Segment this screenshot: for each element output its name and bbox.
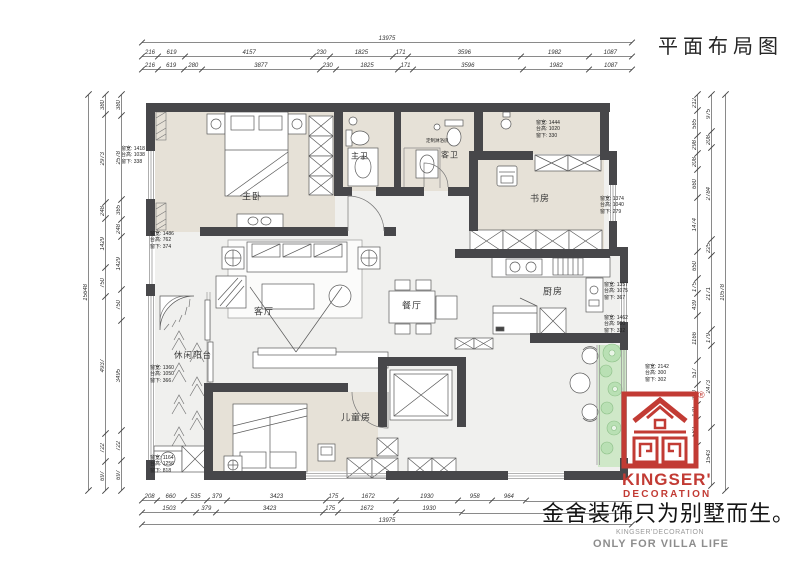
dim-segment: 1930 bbox=[396, 506, 462, 516]
dim-segment: 1474 bbox=[691, 198, 702, 252]
dim-segment: 4937 bbox=[99, 297, 110, 434]
room-label-dining: 餐厅 bbox=[402, 299, 422, 312]
brand-sub-en2: ONLY FOR VILLA LIFE bbox=[586, 538, 736, 550]
dim-segment: 3596 bbox=[408, 50, 521, 60]
dim-chain-bottom-detail-1: 208660535379342317516721930958964 bbox=[142, 494, 526, 504]
dim-chain-bottom-detail-2: 1503379342317516721930 bbox=[142, 506, 462, 516]
dim-segment: 1429 bbox=[115, 237, 126, 290]
registered-mark: ® bbox=[698, 390, 705, 400]
dim-chain-top-overall: 13975 bbox=[142, 36, 632, 46]
brand-slogan: 金舍装饰只为别墅而生。 bbox=[542, 496, 795, 528]
room-label-leisure-balcony: 休闲阳台 bbox=[174, 349, 212, 361]
dim-segment: 975 bbox=[705, 95, 716, 132]
room-label-master: 主卧 bbox=[242, 190, 262, 203]
dim-segment: 1825 bbox=[336, 63, 398, 73]
dim-segment: 1825 bbox=[330, 50, 394, 60]
room-label-guest-bath: 客卫 bbox=[441, 150, 459, 161]
dim-chain-left-inner: 380257836524814297503495722697 bbox=[115, 95, 126, 490]
room-label-kids: 儿童房 bbox=[341, 411, 371, 424]
window-spec-annotation: 窗宽: 1374台高: 1040窗下: 279 bbox=[600, 196, 624, 215]
brand-sub-en1: KINGSER'DECORATION bbox=[595, 529, 725, 536]
dim-segment: 3877 bbox=[202, 63, 320, 73]
dim-segment: 697 bbox=[115, 461, 126, 490]
dim-segment: 2171 bbox=[705, 256, 716, 330]
dim-segment: 1982 bbox=[523, 63, 590, 73]
dim-segment: 2578 bbox=[115, 116, 126, 201]
room-label-master-bath: 主卫 bbox=[351, 151, 369, 162]
dim-chain-left-mid: 380297324814297504937722697 bbox=[99, 95, 110, 490]
dim-segment: 1672 bbox=[341, 494, 396, 504]
dim-segment: 2473 bbox=[705, 346, 716, 429]
brand-name-line1: KINGSER' bbox=[622, 470, 712, 490]
dim-segment: 225 bbox=[705, 240, 716, 256]
room-label-living: 客厅 bbox=[254, 305, 274, 318]
study-desk bbox=[497, 166, 517, 186]
dim-segment: 697 bbox=[99, 462, 110, 490]
dim-segment: 2784 bbox=[705, 148, 716, 240]
window-spec-annotation: 窗宽: 1164台高: 1256窗下: 818 bbox=[150, 455, 174, 474]
dim-segment: 13975 bbox=[142, 36, 632, 46]
elevator-shaft bbox=[390, 370, 452, 420]
window-spec-annotation: 窗宽: 1360台高: 1050窗下: 366 bbox=[150, 365, 174, 384]
kingser-logo: ® bbox=[620, 388, 706, 472]
dim-segment: 1087 bbox=[589, 50, 632, 60]
shower-note: 定制淋浴房 bbox=[426, 138, 449, 144]
dim-chain-top-detail-2: 21661928038772301825171359619821087 bbox=[142, 63, 632, 73]
dim-segment: 15648 bbox=[82, 95, 93, 490]
floor-plan-page: 主卧 主卫 客卫 书房 餐厅 厨房 客厅 休闲阳台 儿童房 定制淋浴房 窗宽: … bbox=[0, 0, 800, 565]
room-label-study: 书房 bbox=[530, 192, 550, 205]
dim-chain-right-mid: 9752082784225217117924731543 bbox=[705, 95, 716, 485]
dim-segment: 1429 bbox=[99, 219, 110, 268]
dim-chain-left-overall: 15648 bbox=[82, 95, 93, 490]
window-spec-annotation: 窗宽: 1486台高: 762窗下: 374 bbox=[150, 231, 174, 250]
dim-segment: 3423 bbox=[216, 506, 322, 516]
dim-segment: 1503 bbox=[142, 506, 196, 516]
dim-segment: 1982 bbox=[521, 50, 589, 60]
dim-segment: 248 bbox=[115, 220, 126, 237]
dim-segment: 1087 bbox=[589, 63, 632, 73]
dim-chain-right-overall: 10578 bbox=[719, 95, 730, 490]
drawing-title: 平面布局图 bbox=[658, 30, 783, 59]
dim-segment: 3596 bbox=[413, 63, 523, 73]
dim-segment: 3495 bbox=[115, 321, 126, 431]
dim-segment: 3423 bbox=[227, 494, 326, 504]
dim-chain-top-detail-1: 21661941572301825171359619821087 bbox=[142, 50, 632, 60]
dim-segment: 4157 bbox=[185, 50, 313, 60]
dim-segment: 212 bbox=[691, 95, 702, 111]
dim-segment: 964 bbox=[492, 494, 526, 504]
window-spec-annotation: 窗宽: 1462台高: 900窗下: 332 bbox=[604, 315, 628, 334]
window-spec-annotation: 窗宽: 1444台高: 1020窗下: 330 bbox=[536, 120, 560, 139]
dim-segment: 958 bbox=[458, 494, 492, 504]
window-spec-annotation: 窗宽: 1357台高: 1075窗下: 367 bbox=[604, 282, 628, 301]
dim-segment: 208 bbox=[691, 154, 702, 170]
dim-segment: 2973 bbox=[99, 115, 110, 203]
dim-segment: 298 bbox=[691, 136, 702, 154]
dim-segment: 1166 bbox=[691, 316, 702, 361]
dim-segment: 10578 bbox=[719, 95, 730, 490]
window-spec-annotation: 窗宽: 2142台高: 300窗下: 302 bbox=[645, 364, 669, 383]
dim-segment: 1930 bbox=[396, 494, 458, 504]
dim-segment: 248 bbox=[99, 203, 110, 219]
dim-segment: 1672 bbox=[338, 506, 397, 516]
room-label-kitchen: 厨房 bbox=[543, 285, 563, 298]
